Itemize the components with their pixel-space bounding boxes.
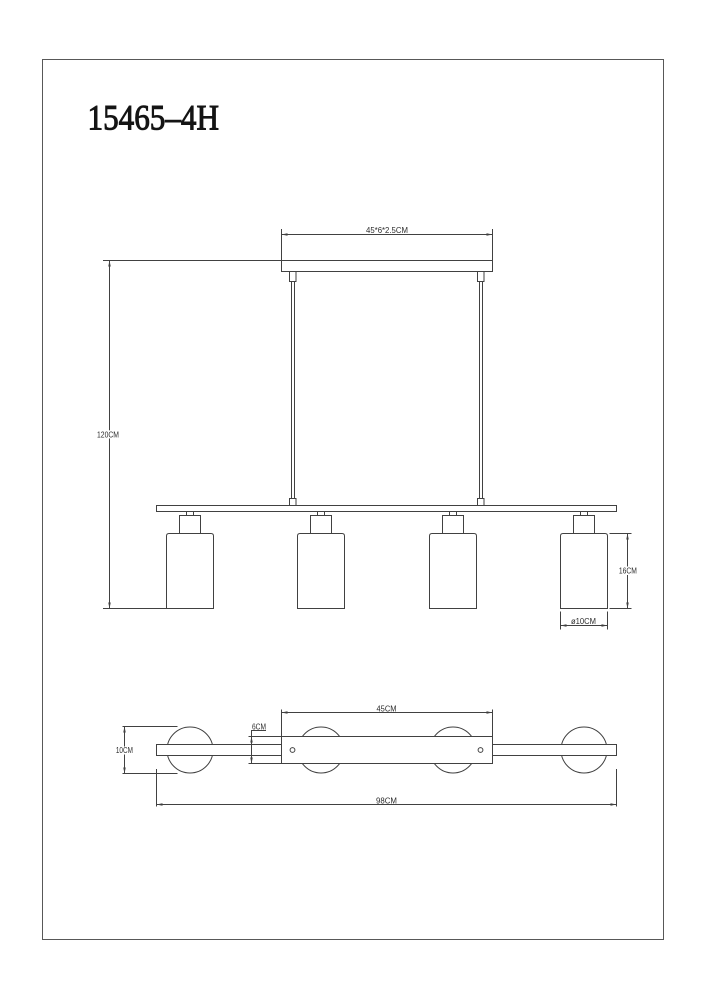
svg-text:10CM: 10CM xyxy=(116,745,133,755)
svg-text:6CM: 6CM xyxy=(252,722,266,732)
svg-text:98CM: 98CM xyxy=(376,795,397,805)
svg-text:45*6*2.5CM: 45*6*2.5CM xyxy=(366,225,408,235)
svg-text:16CM: 16CM xyxy=(619,566,637,576)
svg-text:45CM: 45CM xyxy=(377,704,397,714)
svg-text:15465–4H: 15465–4H xyxy=(88,98,220,138)
svg-text:ø10CM: ø10CM xyxy=(571,616,596,626)
svg-text:120CM: 120CM xyxy=(97,430,119,440)
